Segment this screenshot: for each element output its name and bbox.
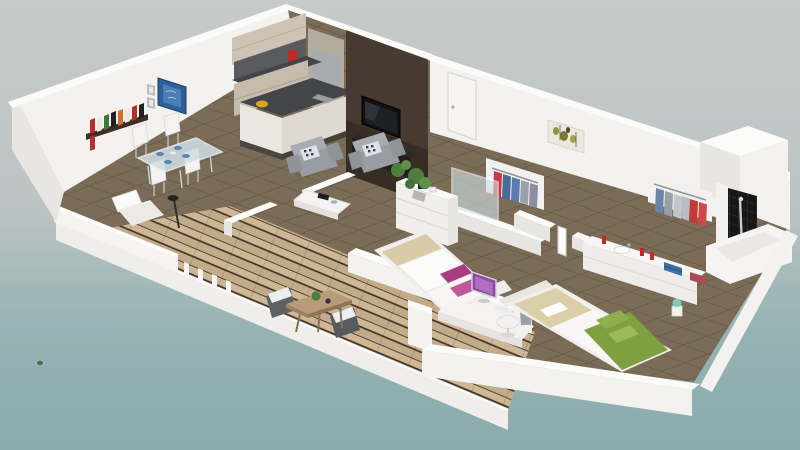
floor-plan-render [0,0,800,450]
table-plant [311,291,320,300]
dresser-side [448,196,458,246]
red-bottle [640,248,644,256]
computer-stand [478,299,490,303]
red-bottle [650,252,654,260]
background-speck [37,361,43,365]
yellow-fruit-bowl [256,101,268,108]
faucet [627,243,630,246]
table-bowl [331,200,338,204]
terrace-jog-wall [408,300,432,352]
mouse [511,310,514,313]
open-door-leaf [558,226,566,256]
shower-head [739,197,743,201]
door-handle [451,105,454,108]
dresser-decor-white [430,187,436,192]
table-item [325,298,330,303]
floor-plan-svg [0,0,800,450]
bedside-lamp [672,299,682,317]
sink [614,247,630,254]
red-bottle [602,236,606,244]
